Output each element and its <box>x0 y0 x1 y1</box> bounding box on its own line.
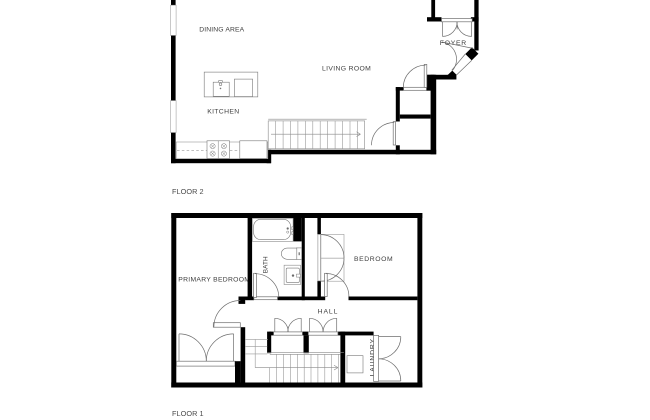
svg-text:FLOOR 2: FLOOR 2 <box>172 187 204 196</box>
svg-text:FLOOR 1: FLOOR 1 <box>172 409 204 418</box>
svg-text:DINING AREA: DINING AREA <box>199 26 244 33</box>
svg-text:LIVING ROOM: LIVING ROOM <box>322 65 371 72</box>
svg-text:BATH: BATH <box>263 256 270 273</box>
svg-text:BEDROOM: BEDROOM <box>354 256 393 263</box>
svg-text:PRIMARY BEDROOM: PRIMARY BEDROOM <box>178 276 250 283</box>
svg-text:KITCHEN: KITCHEN <box>207 108 239 115</box>
svg-text:HALL: HALL <box>318 309 339 316</box>
svg-text:FOYER: FOYER <box>440 40 467 47</box>
